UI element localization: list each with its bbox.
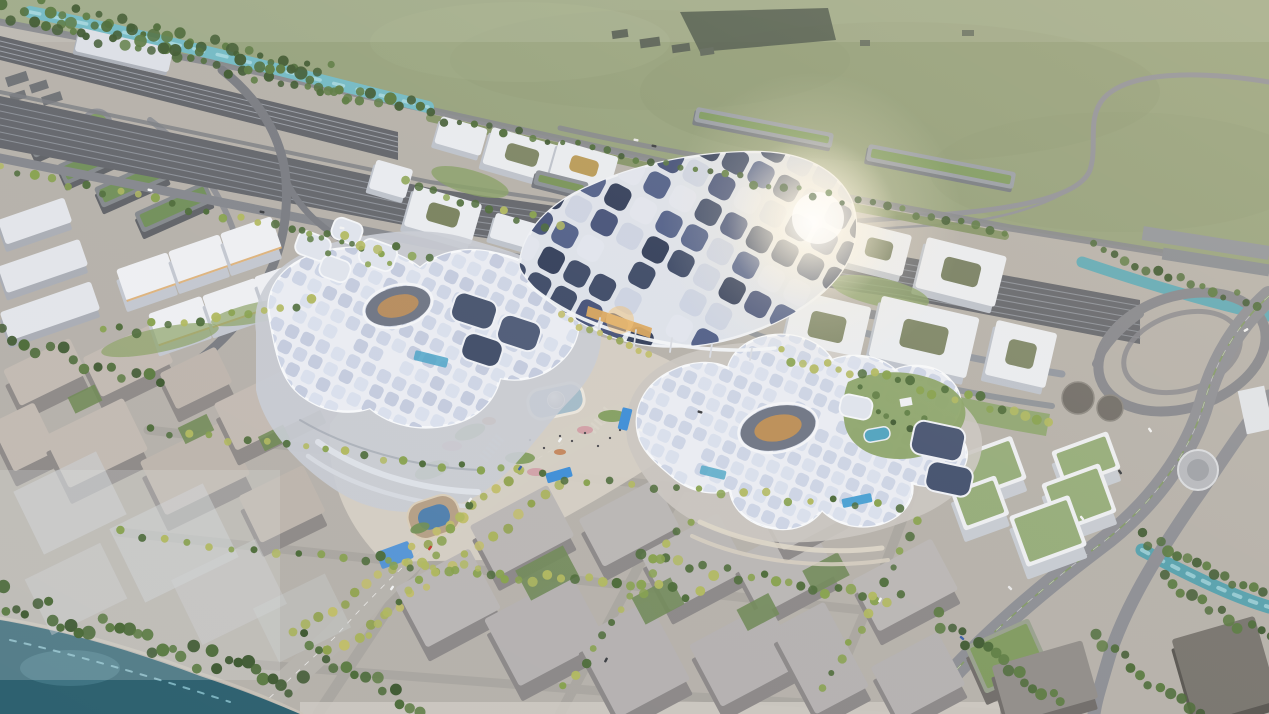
aerial-masterplan-rendering bbox=[0, 0, 1269, 714]
sunlight-wash bbox=[0, 0, 1269, 714]
render-canvas bbox=[0, 0, 1269, 714]
scene-layers bbox=[0, 0, 1269, 714]
layer-atmosphere bbox=[0, 0, 1269, 714]
